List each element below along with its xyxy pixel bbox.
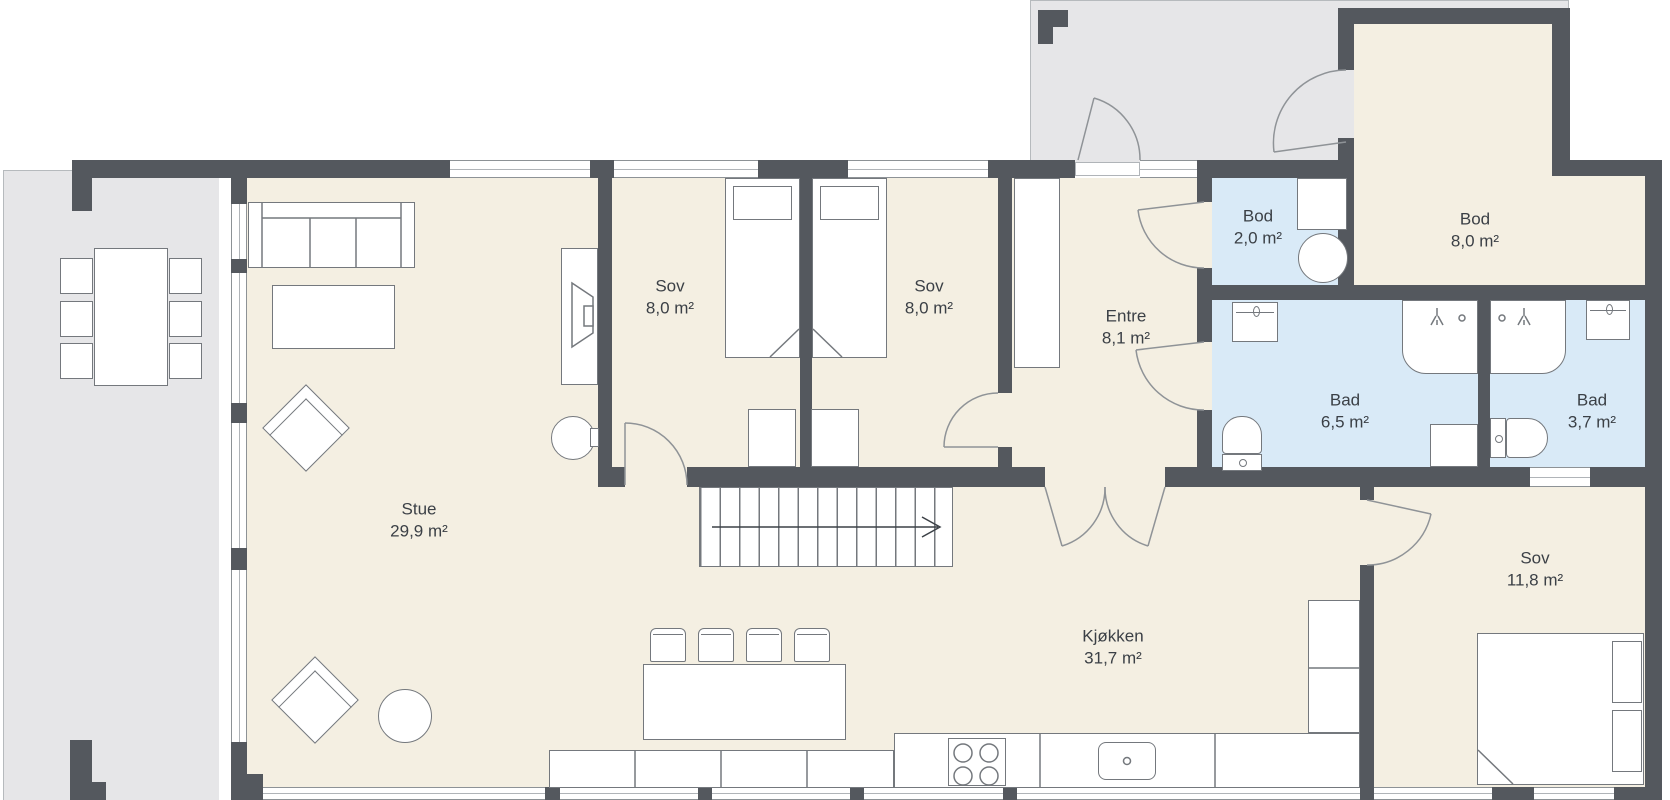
sink-drain <box>1124 758 1131 765</box>
room-name: Entre <box>1102 305 1150 327</box>
door-swing <box>625 423 687 485</box>
room-area: 2,0 m² <box>1234 227 1282 249</box>
room-label-sov1: Sov 8,0 m² <box>646 275 694 319</box>
door-swing <box>944 393 998 447</box>
room-label-bod-large: Bod 8,0 m² <box>1451 208 1499 252</box>
bed-fold <box>770 329 799 357</box>
room-area: 8,0 m² <box>646 297 694 319</box>
door-swing <box>1273 70 1346 152</box>
room-name: Bod <box>1451 208 1499 230</box>
door-swing <box>1138 202 1204 268</box>
bed-fold <box>813 329 842 357</box>
room-name: Sov <box>1507 547 1563 569</box>
room-name: Sov <box>905 275 953 297</box>
room-area: 3,7 m² <box>1568 411 1616 433</box>
door-swing <box>1136 342 1204 410</box>
stairs-up-arrow <box>712 517 940 537</box>
room-label-stue: Stue 29,9 m² <box>390 498 448 542</box>
room-label-kjokken: Kjøkken 31,7 m² <box>1082 625 1143 669</box>
double-door-swing <box>1045 487 1165 546</box>
room-name: Stue <box>390 498 448 520</box>
room-area: 6,5 m² <box>1321 411 1369 433</box>
cooktop-burners <box>954 744 998 785</box>
door-swing <box>1367 500 1431 565</box>
room-label-bad-large: Bad 6,5 m² <box>1321 389 1369 433</box>
room-label-bad-small: Bad 3,7 m² <box>1568 389 1616 433</box>
room-name: Bad <box>1321 389 1369 411</box>
sofa-detail <box>262 202 401 268</box>
room-area: 8,0 m² <box>905 297 953 319</box>
door-swing <box>1078 98 1140 160</box>
room-name: Bod <box>1234 205 1282 227</box>
room-area: 29,9 m² <box>390 520 448 542</box>
plan-detail-overlay <box>0 0 1670 800</box>
tv <box>572 283 593 347</box>
floor-plan: Stue 29,9 m² Sov 8,0 m² Sov 8,0 m² Entre… <box>0 0 1670 800</box>
shower-head-icon <box>1499 308 1530 325</box>
room-name: Sov <box>646 275 694 297</box>
room-name: Bad <box>1568 389 1616 411</box>
bed-fold <box>1478 750 1513 784</box>
room-area: 11,8 m² <box>1507 569 1563 591</box>
room-area: 31,7 m² <box>1082 647 1143 669</box>
room-area: 8,0 m² <box>1451 230 1499 252</box>
room-area: 8,1 m² <box>1102 327 1150 349</box>
counter-division <box>635 668 1360 788</box>
room-label-bod-small: Bod 2,0 m² <box>1234 205 1282 249</box>
room-label-sov3: Sov 11,8 m² <box>1507 547 1563 591</box>
room-label-sov2: Sov 8,0 m² <box>905 275 953 319</box>
room-name: Kjøkken <box>1082 625 1143 647</box>
shower-head-icon <box>1431 308 1465 325</box>
room-label-entre: Entre 8,1 m² <box>1102 305 1150 349</box>
